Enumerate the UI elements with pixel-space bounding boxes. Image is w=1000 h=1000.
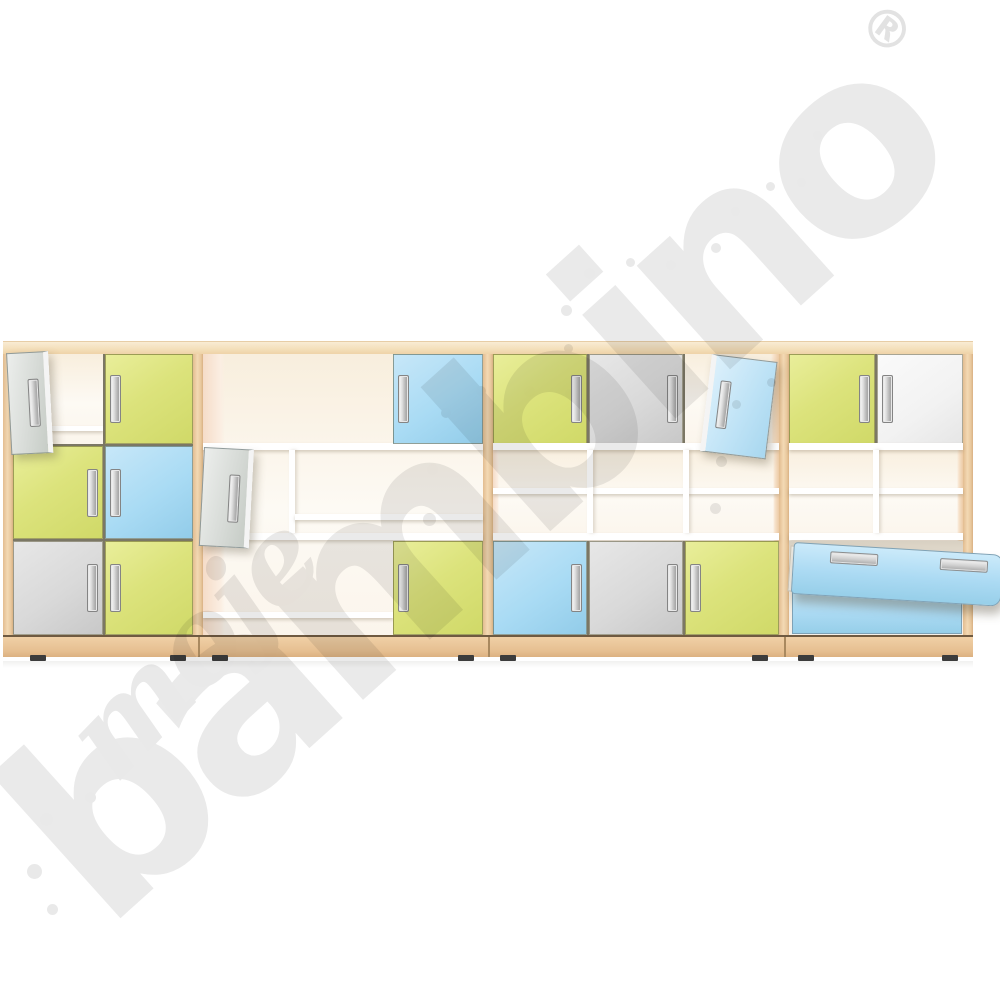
unit3-divider-1 — [587, 450, 593, 533]
unit3-shelf-lower — [493, 533, 779, 540]
unit1-door-lime-bottom-right — [105, 541, 193, 635]
drawer-handle-icon — [830, 551, 879, 566]
cabinet-set — [0, 0, 1000, 1000]
unit2-floor-shelf — [203, 612, 393, 618]
door-handle-icon — [398, 375, 409, 423]
drawer-handle-icon — [940, 558, 989, 573]
unit3-door-lime-bottom-right — [685, 541, 779, 635]
unit3-middle-shelves — [493, 445, 779, 541]
plinth-seam — [198, 637, 200, 657]
wood-frame-2-3 — [483, 354, 493, 635]
unit4-door-lime-top-left — [789, 354, 875, 444]
door-handle-icon — [571, 564, 582, 612]
unit3-door-gray-bottom-center — [589, 541, 683, 635]
unit1-open-door-gray — [6, 351, 53, 455]
unit2-open-door-gray — [199, 447, 254, 548]
floor-shadow — [3, 661, 973, 668]
door-handle-icon — [110, 469, 121, 517]
door-handle-icon — [110, 375, 121, 423]
unit4-shelf-lower — [789, 533, 963, 540]
door-handle-icon — [27, 379, 40, 428]
door-handle-icon — [690, 564, 701, 612]
unit4-door-white-top-right — [877, 354, 963, 444]
plinth-seam — [488, 637, 490, 657]
cabinet-plinth — [3, 635, 973, 657]
unit2-door-lime-bottom-right — [393, 541, 483, 635]
door-handle-icon — [715, 380, 732, 429]
door-handle-icon — [882, 375, 893, 423]
unit4-middle-shelves — [789, 445, 963, 541]
unit4-shelf-upper — [789, 443, 963, 450]
door-handle-icon — [859, 375, 870, 423]
unit2-step-shelf — [295, 514, 483, 520]
door-handle-icon — [87, 564, 98, 612]
unit4-divider — [873, 450, 879, 533]
wood-frame-3-4 — [779, 354, 789, 635]
unit3-shelf-middle — [493, 488, 779, 494]
unit3-door-blue-bottom-left — [493, 541, 587, 635]
door-handle-icon — [398, 564, 409, 612]
plinth-seam — [784, 637, 786, 657]
product-image: bambino moje ® — [0, 0, 1000, 1000]
door-handle-icon — [571, 375, 582, 423]
door-handle-icon — [667, 564, 678, 612]
door-handle-icon — [667, 375, 678, 423]
unit3-divider-2 — [683, 450, 689, 533]
unit2-divider — [289, 450, 295, 533]
door-handle-icon — [227, 474, 240, 523]
unit3-door-lime-top-left — [493, 354, 587, 444]
door-handle-icon — [110, 564, 121, 612]
unit1-door-lime-mid-left — [13, 446, 103, 539]
unit3-door-gray-top-center — [589, 354, 683, 444]
unit1-door-gray-bottom-left — [13, 541, 103, 635]
door-handle-icon — [87, 469, 98, 517]
unit1-door-lime-top-right — [105, 354, 193, 444]
unit1-door-blue-mid-right — [105, 446, 193, 539]
unit2-door-blue-top-right — [393, 354, 483, 444]
unit3-open-door-blue — [700, 354, 777, 459]
